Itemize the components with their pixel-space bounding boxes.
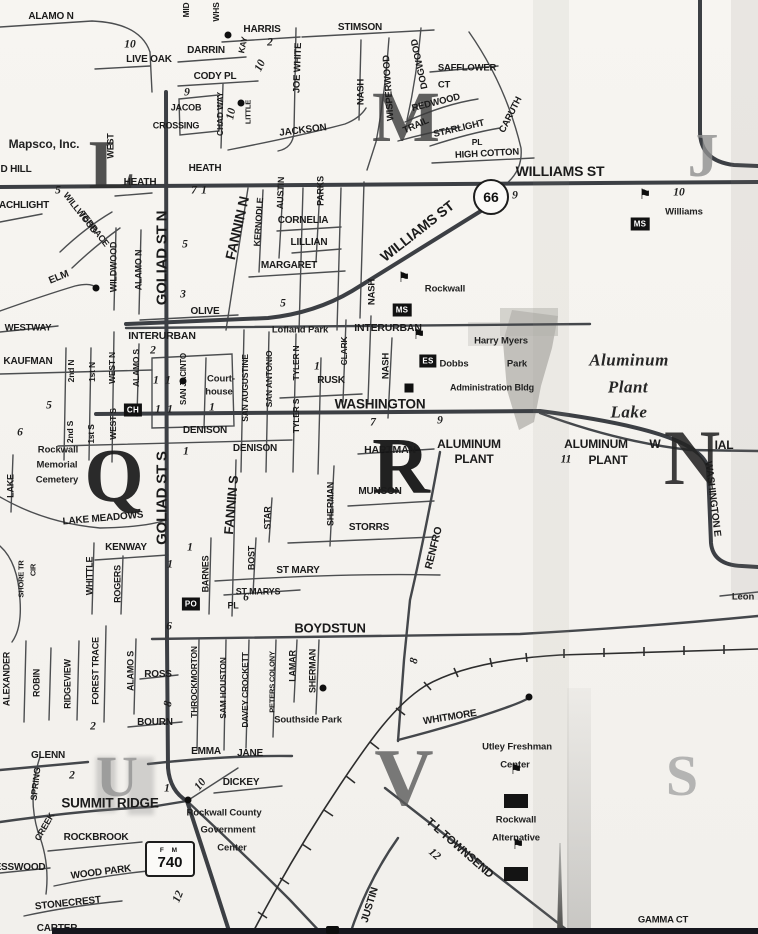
- road-network: [0, 0, 758, 934]
- fm-740-shield: F M 740: [145, 841, 195, 877]
- minor-roads: [0, 21, 758, 916]
- page-edge-bar: [52, 928, 758, 934]
- major-roads: [0, 0, 758, 934]
- highway-66-number: 66: [483, 189, 499, 205]
- fm-label: F M: [160, 847, 180, 854]
- highway-66-shield: 66: [473, 179, 509, 215]
- railroad: [252, 645, 758, 934]
- fm-number: 740: [157, 854, 182, 871]
- page-edge-mark: [326, 926, 339, 934]
- map-canvas: LMJQRNUVS ALAMO NLIVE OAKMIDWHSKAYHARRIS…: [0, 0, 758, 934]
